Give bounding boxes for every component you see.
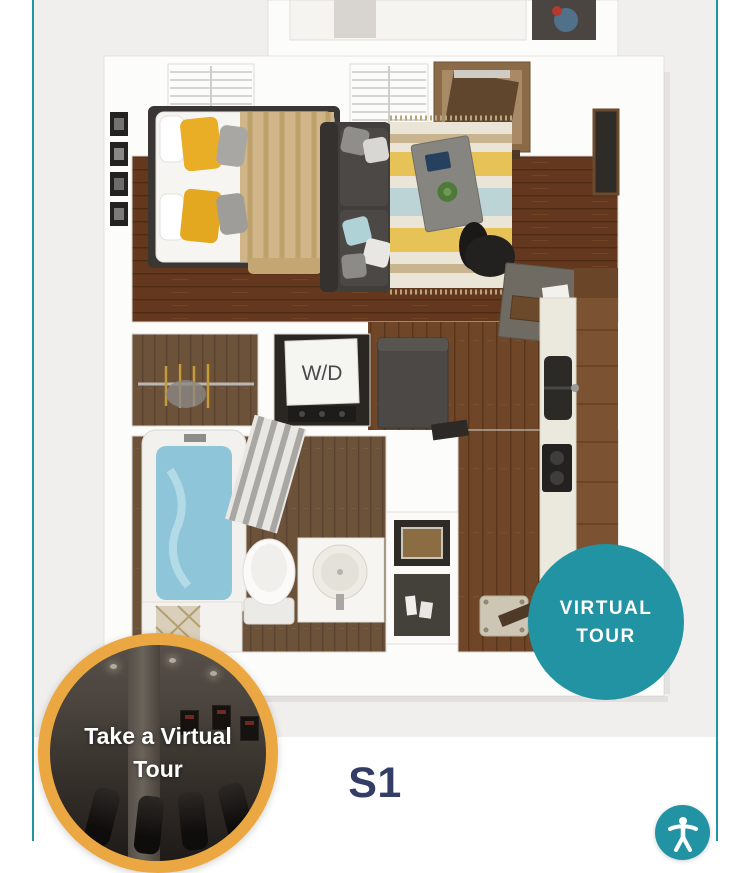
virtual-tour-badge[interactable]: VIRTUAL TOUR	[528, 544, 684, 700]
fridge	[378, 338, 448, 428]
bed	[148, 106, 340, 274]
virtual-tour-badge-line1: VIRTUAL	[560, 599, 653, 618]
vanity-sink	[298, 538, 384, 622]
toilet	[243, 539, 295, 624]
entry-hallway	[290, 0, 596, 40]
niche-shelves	[386, 512, 458, 644]
bathtub	[142, 430, 246, 616]
accessibility-button[interactable]	[655, 805, 710, 860]
floorplan-name: S1	[348, 737, 402, 808]
accessibility-person-icon	[666, 814, 700, 854]
virtual-tour-badge-line2: TOUR	[576, 627, 635, 646]
virtual-tour-thumbnail[interactable]: Take a Virtual Tour	[38, 633, 278, 873]
sofa	[320, 122, 393, 292]
washer-dryer: W/D	[285, 339, 359, 422]
virtual-tour-thumbnail-label: Take a Virtual Tour	[50, 645, 266, 861]
washer-dryer-label: W/D	[302, 362, 343, 385]
wall-art	[594, 110, 618, 194]
